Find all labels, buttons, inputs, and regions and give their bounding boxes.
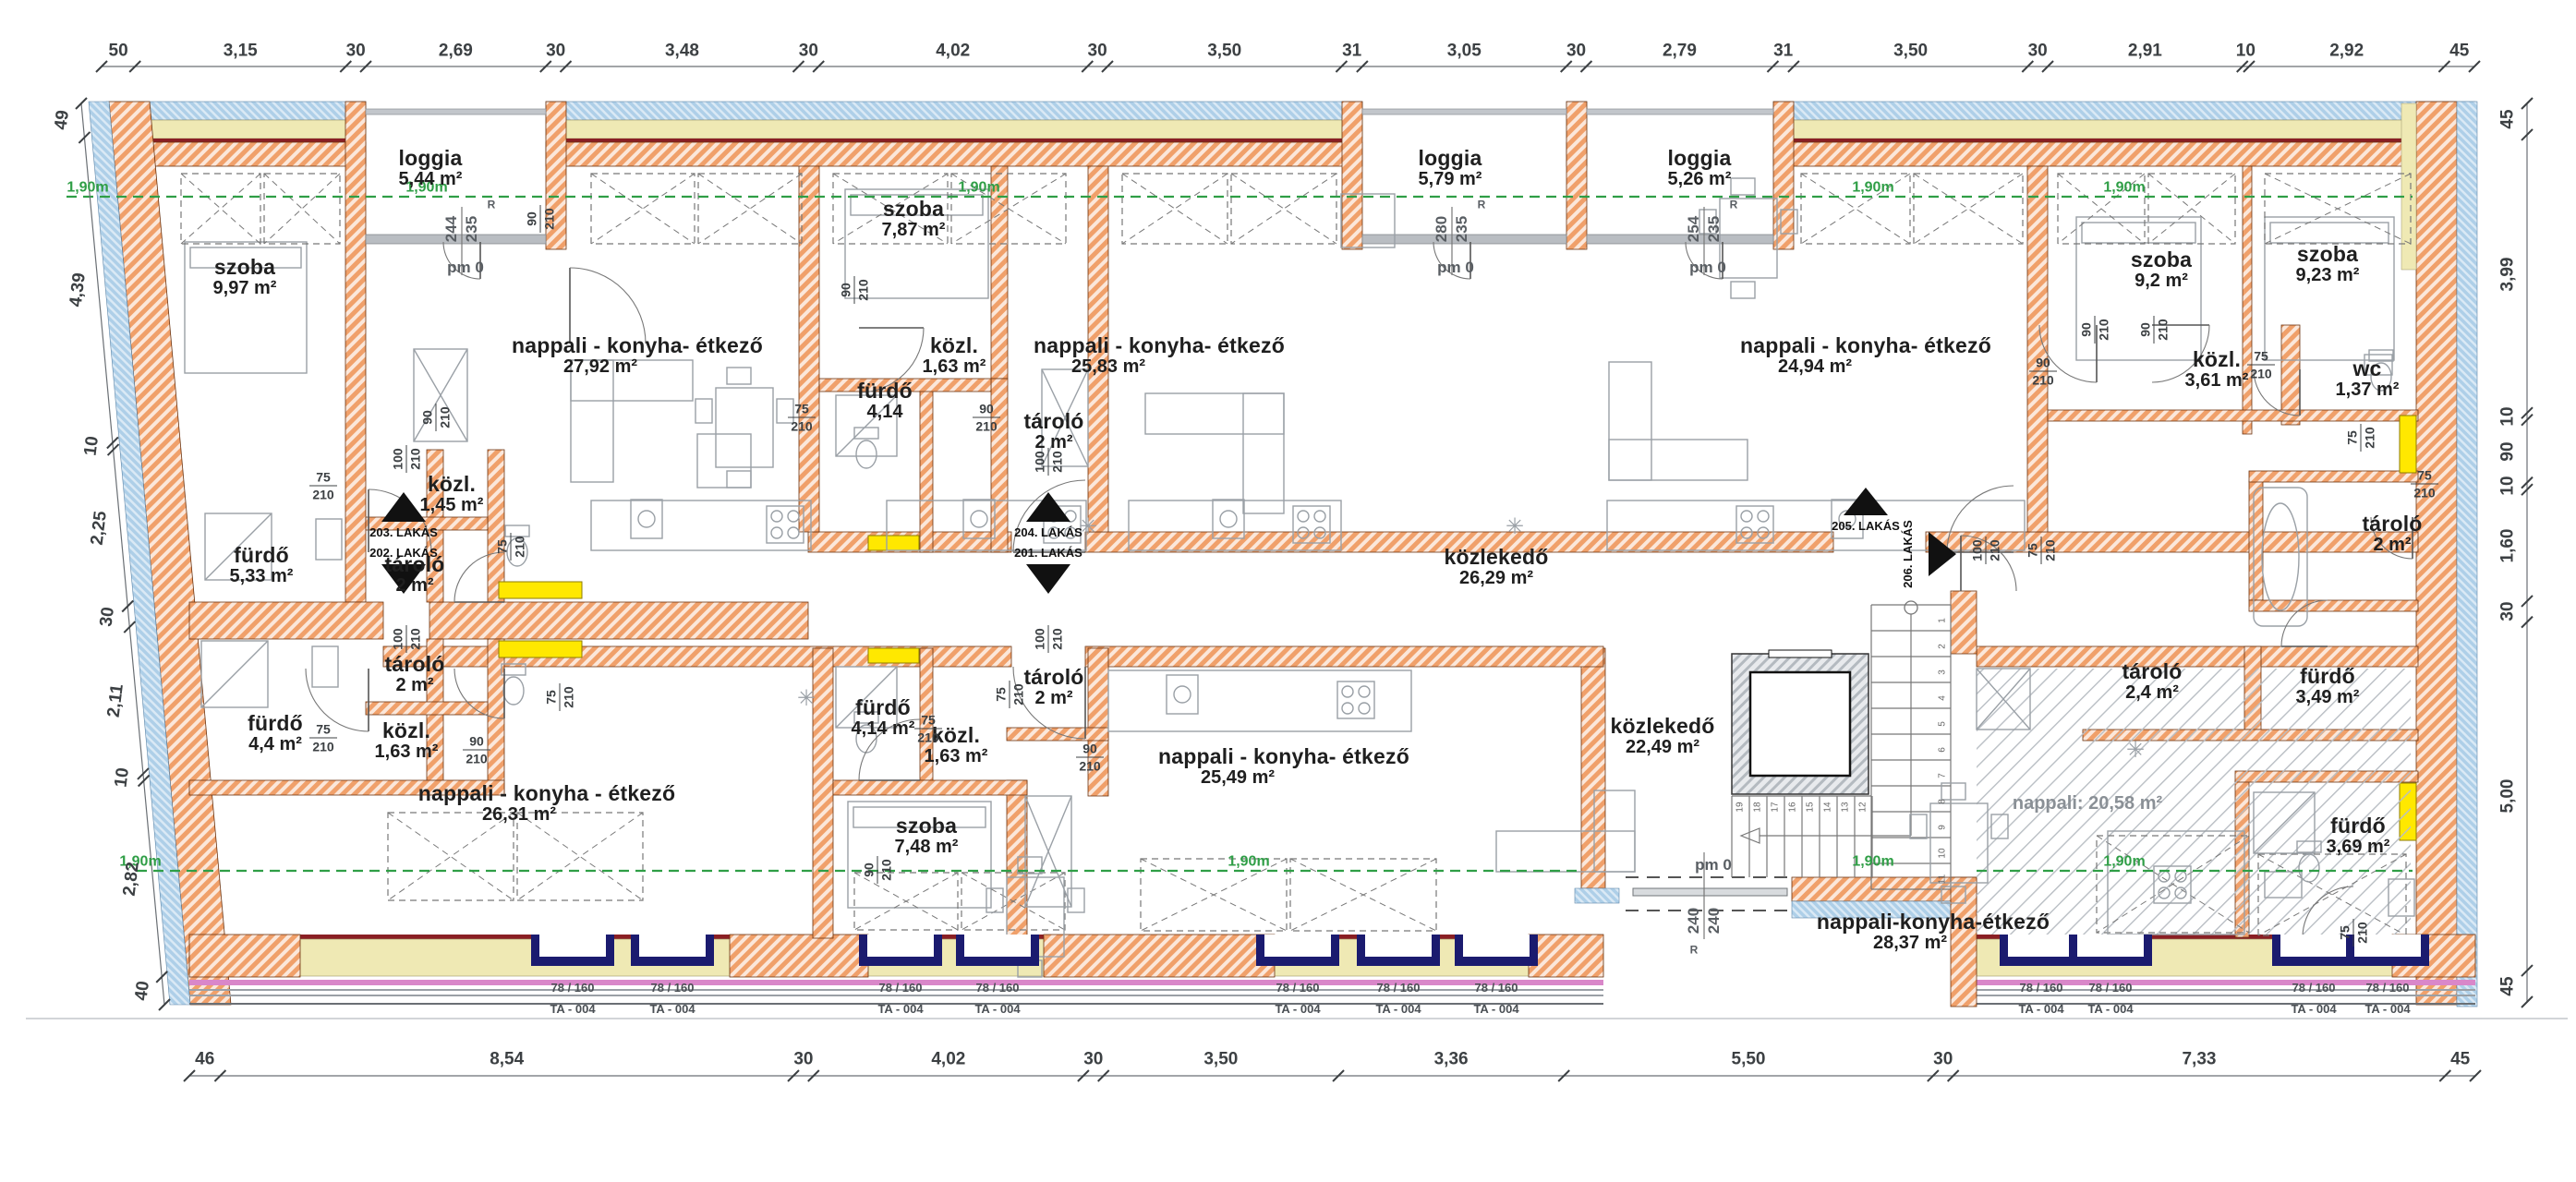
- stair-step-number: 2: [1939, 644, 1949, 649]
- room-name: tároló: [384, 653, 444, 676]
- room-area: 25,49 m²: [1112, 768, 1363, 789]
- door-size-label: 75210: [995, 681, 1025, 708]
- room-name: loggia: [1419, 147, 1482, 170]
- dimension-label: 40: [132, 980, 153, 1001]
- level-label: pm 0: [447, 259, 484, 276]
- dimension-label: 1,60: [2499, 528, 2519, 562]
- room-name: szoba: [2131, 248, 2192, 271]
- stair-step-number: 6: [1939, 747, 1949, 753]
- room-label: közl.1,45 m²: [420, 473, 484, 515]
- room-label: fürdő4,14 m²: [852, 696, 915, 739]
- window-type-label: TA - 004: [1375, 1003, 1421, 1016]
- room-name: közl.: [375, 719, 439, 742]
- dimension-label: 2,11: [104, 682, 127, 718]
- room-area: 9,2 m²: [2131, 271, 2192, 292]
- room-name: fürdő: [2296, 665, 2360, 688]
- window-type-label: TA - 004: [2364, 1003, 2410, 1016]
- room-name: szoba: [895, 814, 959, 838]
- door-size-label: 75210: [2411, 469, 2438, 500]
- stair-step-number: 19: [1736, 802, 1747, 812]
- room-label: fürdő4,4 m²: [248, 712, 303, 754]
- room-area: 25,83 m²: [983, 357, 1234, 378]
- window-type-label: TA - 004: [877, 1003, 923, 1016]
- window-size-label: 78 / 160: [551, 982, 595, 995]
- door-size-label: 100210: [392, 625, 422, 653]
- dimension-label: 30: [1566, 42, 1586, 62]
- apartment-marker-label: 204. LAKÁS: [1014, 526, 1082, 539]
- svg-text:✳: ✳: [1506, 514, 1524, 539]
- dimension-label: 2,79: [1663, 42, 1697, 62]
- dimension-label: 46: [195, 1051, 214, 1070]
- stair-step-number: 3: [1939, 669, 1949, 675]
- window-type-label: TA - 004: [1275, 1003, 1320, 1016]
- room-label: nappali - konyha- étkező24,94 m²: [1740, 334, 1991, 377]
- door-size-label: 100210: [1034, 448, 1064, 476]
- room-area: 5,33 m²: [230, 567, 294, 587]
- door-size-label: 90210: [863, 856, 893, 884]
- room-area: 3,49 m²: [2296, 688, 2360, 708]
- room-label: loggia5,26 m²: [1668, 147, 1732, 189]
- dimension-label: 50: [109, 42, 128, 62]
- room-label: szoba9,2 m²: [2131, 248, 2192, 291]
- window-size-label: 78 / 160: [2089, 982, 2133, 995]
- dimension-label: 4,39: [67, 272, 90, 308]
- dimension-label: 30: [98, 606, 119, 627]
- dimension-label: 49: [52, 110, 73, 131]
- apartment-marker-label: 203. LAKÁS: [369, 526, 438, 539]
- room-label: közlekedő22,49 m²: [1610, 715, 1714, 757]
- dimension-label: 45: [2499, 109, 2519, 128]
- room-label: tároló2 m²: [2362, 513, 2422, 555]
- room-area: 2 m²: [384, 676, 444, 696]
- room-label: közl.3,61 m²: [2185, 348, 2249, 391]
- window-type-label: TA - 004: [1473, 1003, 1518, 1016]
- room-name: közl.: [2185, 348, 2249, 371]
- guide-height-label: 1,90m: [2103, 179, 2145, 195]
- room-name: loggia: [399, 147, 463, 170]
- room-area: 28,37 m²: [1794, 934, 2026, 954]
- dimension-label: 3,50: [1207, 42, 1241, 62]
- window-size-label: 78 / 160: [1475, 982, 1518, 995]
- dimension-label: 45: [2449, 42, 2469, 62]
- stair-step-number: 11: [1939, 874, 1949, 884]
- room-area: 4,4 m²: [248, 735, 303, 755]
- window-size-label: 78 / 160: [2292, 982, 2336, 995]
- loggia-door-height: 235: [464, 216, 480, 242]
- window-size-label: 78 / 160: [2020, 982, 2063, 995]
- room-name: közl.: [923, 334, 986, 357]
- dimension-label: 90: [2499, 441, 2519, 461]
- guide-height-label: 1,90m: [1852, 853, 1893, 869]
- guide-height-label: 1,90m: [1852, 179, 1893, 195]
- stair-step-number: 12: [1859, 802, 1869, 812]
- window-type-label: TA - 004: [2087, 1003, 2133, 1016]
- room-area: 2 m²: [384, 576, 444, 597]
- dimension-label: 10: [113, 766, 134, 788]
- dimension-label: 3,36: [1434, 1051, 1469, 1070]
- dimension-label: 3,48: [665, 42, 699, 62]
- room-area: 1,37 m²: [2336, 380, 2400, 401]
- window-size-label: 78 / 160: [2366, 982, 2410, 995]
- room-name: fürdő: [852, 696, 915, 719]
- room-label: nappali - konyha- étkező25,83 m²: [1034, 334, 1285, 377]
- apartment-marker-label: 206. LAKÁS: [1902, 520, 1915, 588]
- door-size-label: 90210: [526, 205, 556, 233]
- room-label: nappali - konyha- étkező27,92 m²: [512, 334, 763, 377]
- window-type-label: TA - 004: [550, 1003, 595, 1016]
- stair-step-number: 7: [1939, 773, 1949, 778]
- window-size-label: 78 / 160: [1276, 982, 1320, 995]
- room-label: loggia5,44 m²: [399, 147, 463, 189]
- room-name: nappali - konyha - étkező: [418, 782, 676, 805]
- dimension-label: 10: [2499, 476, 2519, 496]
- apartment-marker-label: 201. LAKÁS: [1014, 547, 1082, 560]
- dimension-label: 45: [2450, 1051, 2470, 1070]
- guide-height-label: 1,90m: [2103, 853, 2145, 869]
- room-name: nappali-konyha-étkező: [1817, 911, 2050, 934]
- door-size-label: 90210: [463, 735, 490, 766]
- room-label: tároló2 m²: [384, 653, 444, 695]
- door-size-label: 90210: [2139, 316, 2170, 344]
- room-label: fürdő5,33 m²: [230, 544, 294, 586]
- room-name: közlekedő: [1444, 546, 1548, 569]
- dimension-label: 3,50: [1203, 1051, 1238, 1070]
- room-name: fürdő: [2327, 814, 2390, 838]
- room-label: szoba7,48 m²: [895, 814, 959, 857]
- door-size-label: 75210: [788, 403, 816, 433]
- dimension-label: 3,15: [224, 42, 258, 62]
- step-dim: 240: [1706, 908, 1723, 934]
- dimension-label: 31: [1773, 42, 1793, 62]
- dimension-label: 30: [346, 42, 366, 62]
- room-area: 5,79 m²: [1419, 170, 1482, 190]
- window-type-label: TA - 004: [974, 1003, 1020, 1016]
- door-size-label: 75210: [2247, 350, 2275, 380]
- door-size-label: 90210: [840, 276, 870, 304]
- door-size-label: 75210: [309, 471, 337, 501]
- dimension-label: 5,00: [2499, 779, 2519, 814]
- door-size-label: 75210: [914, 714, 942, 744]
- room-label: nappali - konyha - étkező26,31 m²: [418, 782, 676, 825]
- room-label: közl.1,63 m²: [923, 334, 986, 377]
- dimension-label: 7,33: [2182, 1051, 2216, 1070]
- room-name: wc: [2336, 357, 2400, 380]
- guide-height-label: 1,90m: [1228, 853, 1269, 869]
- dimension-label: 30: [2499, 602, 2519, 621]
- dimension-label: 3,50: [1893, 42, 1928, 62]
- room-area: 26,29 m²: [1444, 569, 1548, 589]
- room-label-partial-nappali: nappali: 20,58 m²: [2013, 794, 2162, 814]
- room-area: 5,44 m²: [399, 170, 463, 190]
- room-label: szoba9,97 m²: [213, 256, 277, 298]
- floor-plan: ✳✳✳✳ nappali: 20,58 m² 12345678910111213…: [0, 0, 2576, 1182]
- room-label: tároló2 m²: [1023, 410, 1083, 452]
- guide-height-label: 1,90m: [958, 179, 999, 195]
- threshold-r-label: R: [1690, 945, 1699, 957]
- room-name: loggia: [1668, 147, 1732, 170]
- dimension-label: 5,50: [1732, 1051, 1766, 1070]
- dimension-label: 2,92: [2329, 42, 2364, 62]
- dimension-label: 30: [799, 42, 818, 62]
- stair-step-number: 10: [1939, 848, 1949, 858]
- dimension-label: 30: [1083, 1051, 1103, 1070]
- dimension-label: 4,02: [936, 42, 970, 62]
- window-size-label: 78 / 160: [651, 982, 695, 995]
- dimension-label: 30: [1933, 1051, 1953, 1070]
- svg-text:✳: ✳: [797, 686, 816, 711]
- dimension-label: 4,02: [931, 1051, 965, 1070]
- room-label: wc1,37 m²: [2336, 357, 2400, 400]
- dimension-label: 10: [2499, 406, 2519, 426]
- room-label: tároló2 m²: [1023, 666, 1083, 708]
- dimension-label: 45: [2499, 976, 2519, 995]
- guide-height-label: 1,90m: [67, 179, 108, 195]
- room-area: 22,49 m²: [1610, 738, 1714, 758]
- room-name: fürdő: [230, 544, 294, 567]
- room-name: fürdő: [248, 712, 303, 735]
- dimension-label: 31: [1342, 42, 1361, 62]
- room-label: fürdő4,14: [857, 380, 913, 422]
- dimension-label: 3,05: [1447, 42, 1482, 62]
- loggia-door-width: 280: [1433, 216, 1450, 242]
- room-label: tároló2,4 m²: [2122, 660, 2182, 703]
- door-size-label: 90210: [973, 403, 1000, 433]
- room-area: 1,63 m²: [923, 357, 986, 378]
- door-size-label: 75210: [545, 683, 575, 711]
- room-name: közlekedő: [1610, 715, 1714, 738]
- room-area: 2,4 m²: [2122, 683, 2182, 704]
- door-size-label: 75210: [309, 723, 337, 754]
- room-label: nappali - konyha- étkező25,49 m²: [1158, 745, 1409, 788]
- door-size-label: 90210: [2080, 316, 2110, 344]
- door-size-label: 90210: [2029, 356, 2057, 387]
- threshold-r-label: R: [1730, 199, 1738, 211]
- room-label: szoba9,23 m²: [2296, 243, 2360, 285]
- dimension-label: 10: [2236, 42, 2256, 62]
- stair-step-number: 18: [1754, 802, 1764, 812]
- stair-step-number: 5: [1939, 721, 1949, 727]
- room-area: 1,45 m²: [420, 496, 484, 516]
- dimension-label: 3,99: [2499, 257, 2519, 291]
- room-name: nappali - konyha- étkező: [512, 334, 763, 357]
- dimension-label: 30: [546, 42, 565, 62]
- loggia-door-width: 254: [1686, 216, 1702, 242]
- door-size-label: 75210: [496, 533, 526, 561]
- room-name: szoba: [882, 198, 946, 221]
- level-label: pm 0: [1689, 259, 1726, 276]
- room-name: közl.: [420, 473, 484, 496]
- stair-step-number: 14: [1824, 802, 1834, 812]
- room-label: szoba7,87 m²: [882, 198, 946, 240]
- room-area: 1,63 m²: [375, 742, 439, 763]
- door-size-label: 100210: [1034, 625, 1064, 653]
- level-label: pm 0: [1437, 259, 1474, 276]
- window-size-label: 78 / 160: [976, 982, 1020, 995]
- room-area: 2 m²: [2362, 536, 2422, 556]
- stair-step-number: 15: [1807, 802, 1817, 812]
- room-area: 7,87 m²: [882, 221, 946, 241]
- dimension-label: 2,91: [2128, 42, 2162, 62]
- dimension-label: 30: [793, 1051, 813, 1070]
- door-size-label: 90210: [421, 404, 452, 431]
- stair-step-number: 17: [1772, 802, 1782, 812]
- room-label: fürdő3,69 m²: [2327, 814, 2390, 857]
- room-label: fürdő3,49 m²: [2296, 665, 2360, 707]
- room-area: 27,92 m²: [475, 357, 726, 378]
- door-size-label: 90210: [1076, 742, 1104, 773]
- dimension-label: 30: [1088, 42, 1107, 62]
- window-size-label: 78 / 160: [879, 982, 923, 995]
- door-size-label: 100210: [392, 445, 422, 473]
- dimension-label: 10: [82, 436, 103, 457]
- room-area: 2 m²: [1023, 689, 1083, 709]
- room-label: nappali-konyha-étkező28,37 m²: [1817, 911, 2050, 953]
- window-size-label: 78 / 160: [1377, 982, 1421, 995]
- dimension-label: 2,69: [439, 42, 473, 62]
- room-label: közlekedő26,29 m²: [1444, 546, 1548, 588]
- stair-step-number: 16: [1789, 802, 1799, 812]
- stair-step-number: 1: [1939, 618, 1949, 623]
- door-size-label: 75210: [2339, 919, 2369, 947]
- room-label: loggia5,79 m²: [1419, 147, 1482, 189]
- threshold-r-label: R: [1478, 199, 1486, 211]
- apartment-marker-label: 202. LAKÁS: [369, 547, 438, 560]
- stair-step-number: 4: [1939, 695, 1949, 701]
- room-area: 3,61 m²: [2185, 371, 2249, 392]
- dimension-label: 30: [2028, 42, 2048, 62]
- room-area: 1,63 m²: [925, 747, 988, 767]
- room-area: 4,14 m²: [852, 719, 915, 740]
- stair-step-number: 9: [1939, 825, 1949, 830]
- room-label: közl.1,63 m²: [375, 719, 439, 762]
- room-area: 5,26 m²: [1668, 170, 1732, 190]
- room-name: tároló: [2362, 513, 2422, 536]
- room-name: szoba: [213, 256, 277, 279]
- room-name: nappali - konyha- étkező: [1740, 334, 1991, 357]
- room-name: fürdő: [857, 380, 913, 403]
- room-name: tároló: [1023, 666, 1083, 689]
- room-name: szoba: [2296, 243, 2360, 266]
- room-name: nappali - konyha- étkező: [1158, 745, 1409, 768]
- stair-step-number: 8: [1939, 799, 1949, 804]
- room-area: 9,97 m²: [213, 279, 277, 299]
- loggia-door-height: 235: [1454, 216, 1470, 242]
- room-area: 3,69 m²: [2327, 838, 2390, 858]
- threshold-r-label: R: [488, 199, 496, 211]
- level-label: pm 0: [1695, 857, 1732, 874]
- stair-step-number: 13: [1842, 802, 1852, 812]
- room-area: 7,48 m²: [895, 838, 959, 858]
- window-type-label: TA - 004: [2018, 1003, 2063, 1016]
- dimension-label: 8,54: [490, 1051, 524, 1070]
- door-size-label: 100210: [1971, 537, 2002, 564]
- door-size-label: 75210: [2026, 537, 2057, 564]
- apartment-marker-label: 205. LAKÁS: [1832, 520, 1900, 533]
- room-name: nappali - konyha- étkező: [1034, 334, 1285, 357]
- room-area: 26,31 m²: [391, 805, 648, 826]
- door-size-label: 75210: [2346, 424, 2376, 452]
- room-area: 4,14: [857, 403, 913, 423]
- loggia-door-height: 235: [1706, 216, 1723, 242]
- room-name: tároló: [1023, 410, 1083, 433]
- window-type-label: TA - 004: [2291, 1003, 2336, 1016]
- room-area: 9,23 m²: [2296, 266, 2360, 286]
- svg-text:✳: ✳: [2126, 738, 2145, 763]
- step-dim: 240: [1686, 908, 1702, 934]
- loggia-door-width: 244: [443, 216, 460, 242]
- room-name: tároló: [2122, 660, 2182, 683]
- room-area: 24,94 m²: [1689, 357, 1941, 378]
- window-type-label: TA - 004: [649, 1003, 695, 1016]
